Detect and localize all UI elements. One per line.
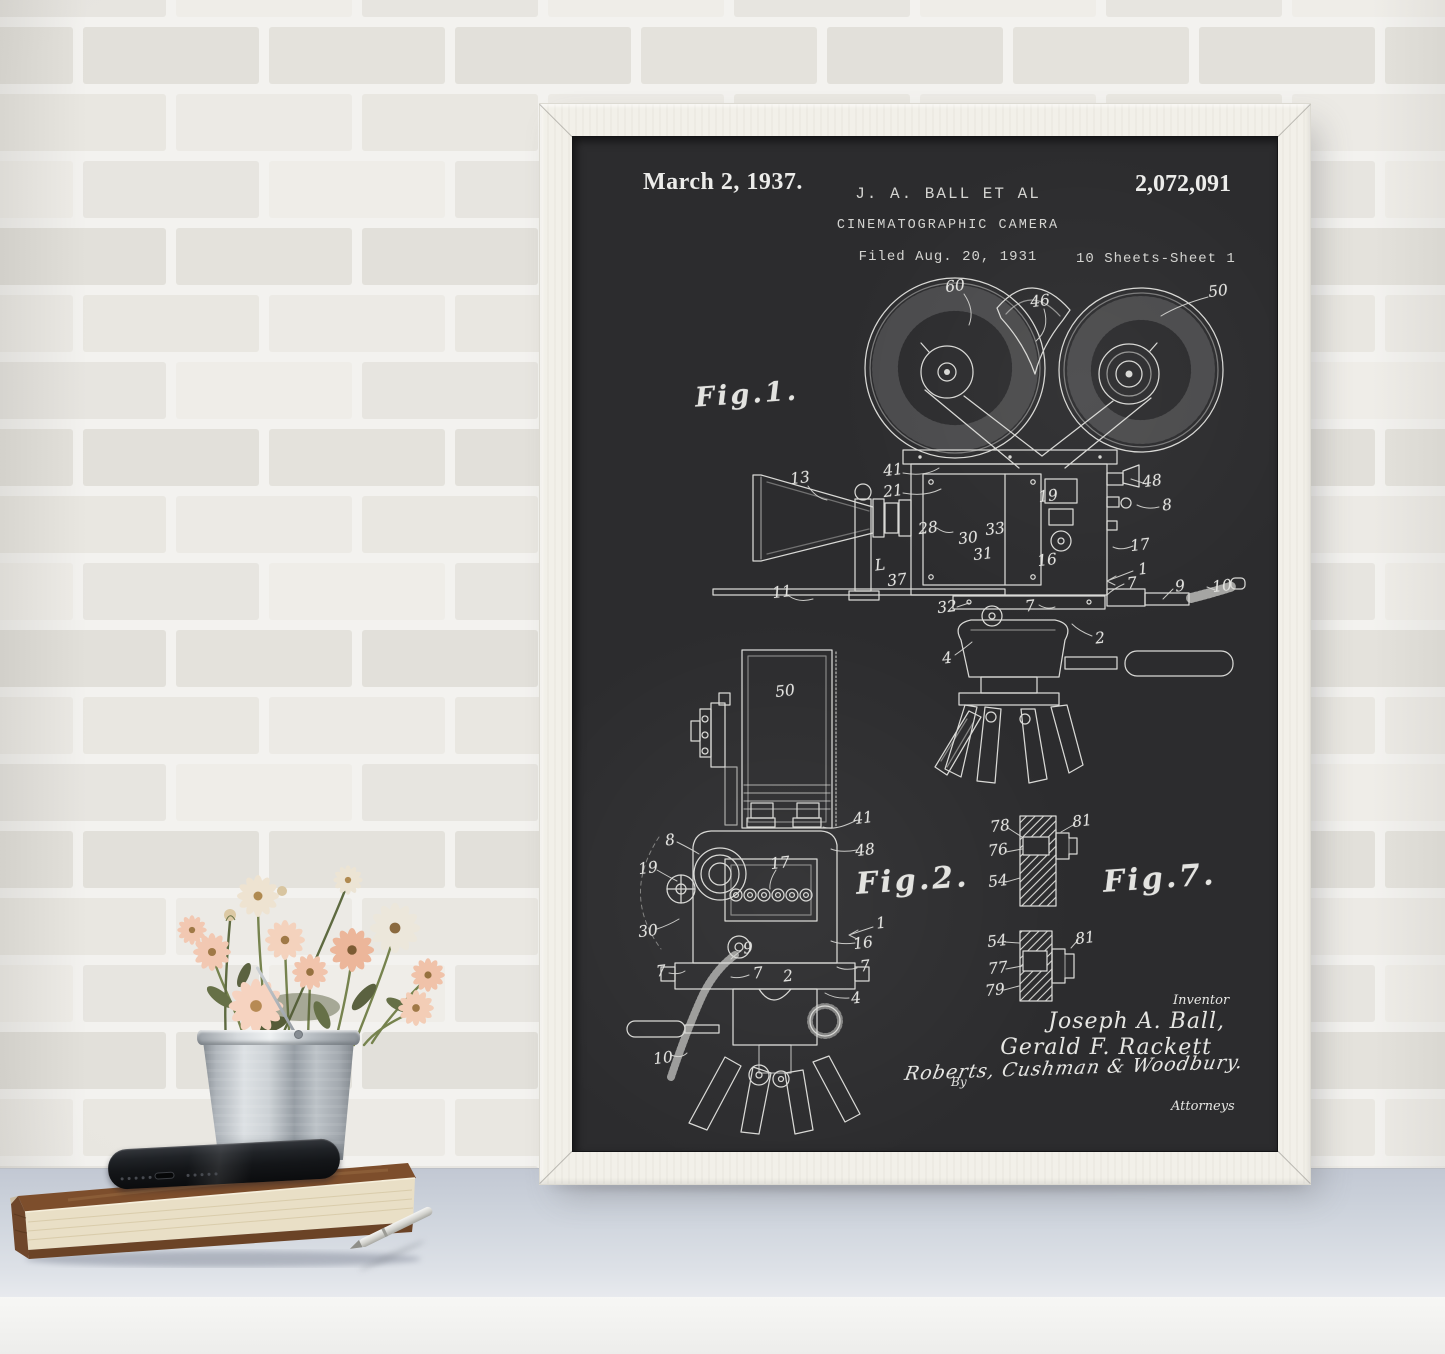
brick	[176, 94, 352, 151]
brick	[1385, 295, 1445, 352]
scene: March 2, 1937. 2,072,091 J. A. BALL ET A…	[0, 0, 1445, 1354]
brick	[0, 697, 73, 754]
brick	[362, 496, 538, 553]
brick	[269, 295, 445, 352]
brick	[176, 362, 352, 419]
brick	[0, 898, 166, 955]
brick	[83, 161, 259, 218]
brick	[1292, 362, 1445, 419]
brick	[0, 496, 166, 553]
brick	[1385, 27, 1445, 84]
brick	[1013, 27, 1189, 84]
brick	[362, 228, 538, 285]
brick	[269, 27, 445, 84]
figure-ref-label: 76	[987, 840, 1009, 860]
figure-ref-label: 78	[989, 816, 1011, 836]
brick	[1292, 764, 1445, 821]
phone-charging-port	[154, 1172, 174, 1180]
brick	[1292, 1032, 1445, 1089]
brick	[0, 764, 166, 821]
brick	[176, 496, 352, 553]
brick	[362, 764, 538, 821]
brick	[176, 630, 352, 687]
brick	[641, 27, 817, 84]
brick	[0, 94, 166, 151]
frame-miter-joint	[539, 1151, 572, 1184]
brick	[1292, 496, 1445, 553]
brick	[83, 563, 259, 620]
brick	[1385, 161, 1445, 218]
brick	[827, 27, 1003, 84]
brick	[455, 27, 631, 84]
brick	[0, 1032, 166, 1089]
brick	[0, 161, 73, 218]
frame-miter-joint	[1277, 1151, 1310, 1184]
brick	[269, 161, 445, 218]
brick	[83, 429, 259, 486]
brick	[920, 0, 1096, 17]
brick	[269, 429, 445, 486]
chalkboard-patent-print: March 2, 1937. 2,072,091 J. A. BALL ET A…	[572, 136, 1278, 1152]
brick	[1292, 898, 1445, 955]
brick	[0, 831, 73, 888]
inventor-label: Inventor	[1173, 993, 1229, 1008]
brick	[269, 563, 445, 620]
bucket-rim	[197, 1030, 360, 1045]
brick	[176, 228, 352, 285]
brick	[362, 94, 538, 151]
brick	[1292, 228, 1445, 285]
figure-ref-label: 79	[984, 980, 1006, 1000]
frame-miter-joint	[1277, 104, 1310, 137]
brick	[83, 697, 259, 754]
brick	[83, 295, 259, 352]
brick	[362, 630, 538, 687]
brick	[1292, 94, 1445, 151]
brick	[0, 295, 73, 352]
brick	[1199, 27, 1375, 84]
figure-ref-label: 54	[986, 931, 1008, 951]
flower-bud	[277, 886, 287, 896]
table-front-edge	[0, 1297, 1445, 1354]
brick	[362, 0, 538, 17]
brick	[83, 27, 259, 84]
brick	[0, 362, 166, 419]
brick	[1106, 0, 1282, 17]
brick	[1385, 1099, 1445, 1156]
brick	[0, 563, 73, 620]
pen-ring	[381, 1228, 388, 1237]
figure-ref-label: 81	[1071, 811, 1093, 831]
brick	[1292, 630, 1445, 687]
brick	[548, 0, 724, 17]
brick	[734, 0, 910, 17]
brick	[1385, 697, 1445, 754]
brick	[0, 0, 166, 17]
brick	[1385, 429, 1445, 486]
brick	[1385, 831, 1445, 888]
figure-ref-label: 77	[987, 958, 1009, 978]
brick	[176, 764, 352, 821]
brick	[176, 0, 352, 17]
poster-frame: March 2, 1937. 2,072,091 J. A. BALL ET A…	[539, 103, 1311, 1185]
brick	[0, 965, 73, 1022]
figure-ref-label: 81	[1074, 928, 1096, 948]
inventor-name-1: Joseph A. Ball,	[1048, 1009, 1225, 1034]
bucket-handle-lug	[294, 1030, 303, 1039]
attorneys-label: Attorneys	[1171, 1099, 1235, 1114]
frame-miter-joint	[539, 104, 572, 137]
brick	[1385, 563, 1445, 620]
brick	[269, 697, 445, 754]
brick	[0, 429, 73, 486]
figure-ref-label: 54	[987, 871, 1009, 891]
brick	[362, 362, 538, 419]
brick	[0, 630, 166, 687]
brick	[1292, 0, 1445, 17]
brick	[0, 228, 166, 285]
brick	[1385, 965, 1445, 1022]
brick	[0, 27, 73, 84]
